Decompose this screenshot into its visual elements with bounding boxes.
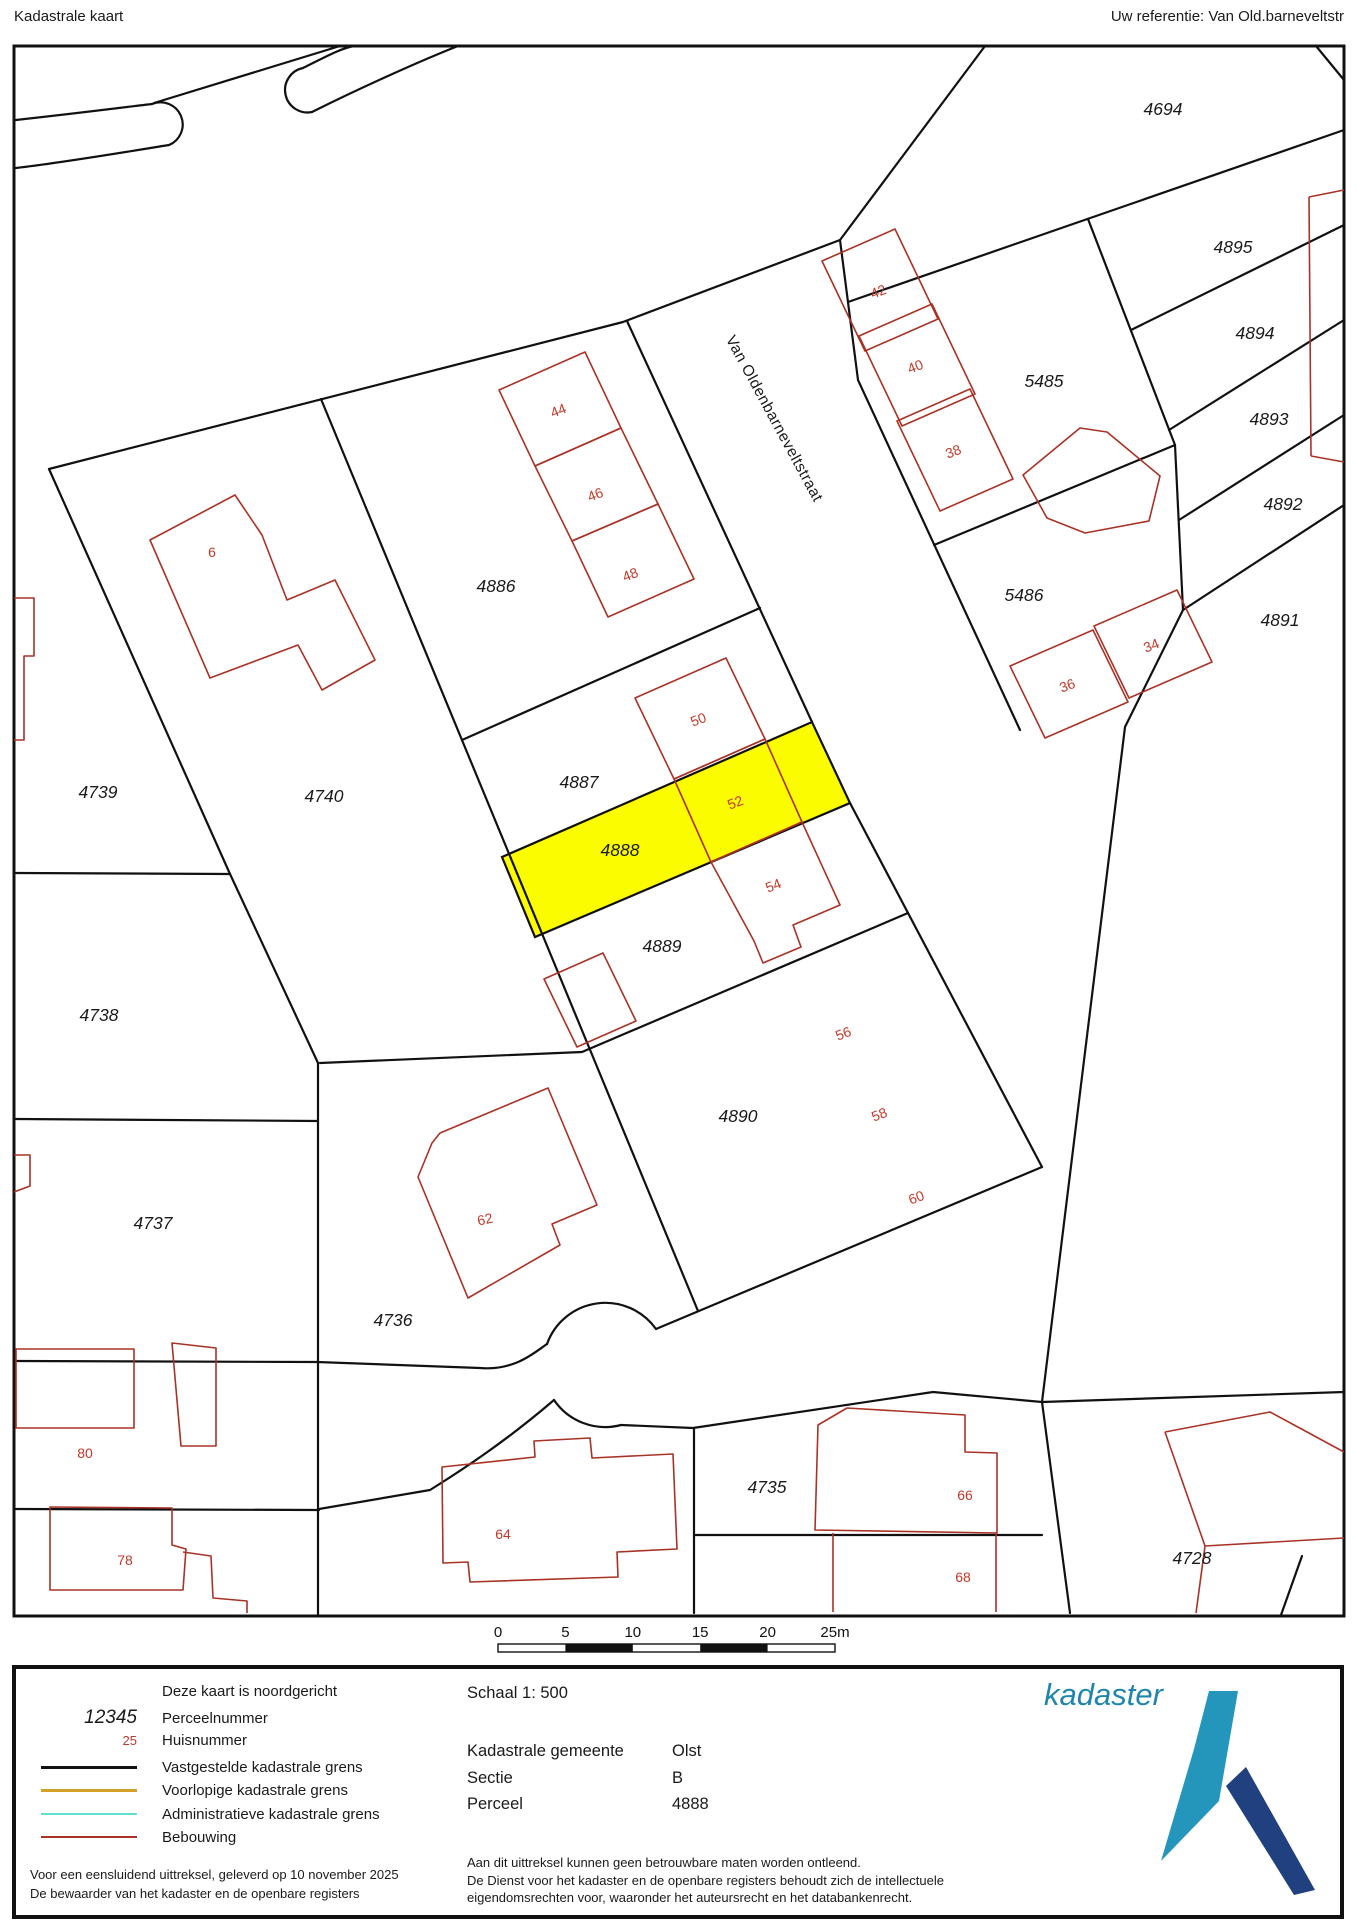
detail-value: Olst [672,1742,701,1761]
parcel-label-5485: 5485 [1025,371,1064,391]
parcel-label-4894: 4894 [1236,323,1275,343]
copyright-note: Aan dit uittreksel kunnen geen betrouwba… [467,1854,944,1907]
legend-sample [41,1756,137,1778]
detail-value: 4888 [672,1795,709,1814]
scale-tick-20: 20 [759,1624,776,1641]
legend-sample [41,1803,137,1825]
scale-tick-10: 10 [624,1624,641,1641]
detail-row: Kadastrale gemeenteOlst [467,1742,1007,1764]
parcel-label-4888: 4888 [601,840,640,860]
detail-row: SectieB [467,1769,1007,1791]
legend-item: 12345Perceelnummer [41,1707,601,1729]
house-number-68: 68 [955,1569,971,1585]
kadaster-logo-icon [1141,1679,1351,1919]
legend-label: Perceelnummer [162,1707,268,1729]
parcel-label-5486: 5486 [1005,585,1044,605]
parcel-label-4737: 4737 [134,1213,174,1233]
legend-sample: 25 [41,1729,137,1751]
legend-sample: 12345 [41,1707,137,1729]
parcel-label-4728: 4728 [1173,1548,1212,1568]
parcel-label-4735: 4735 [748,1477,787,1497]
detail-row: Perceel4888 [467,1795,1007,1817]
parcel-label-4886: 4886 [477,576,516,596]
scale-bar: 0510152025m [494,1624,850,1652]
map-view[interactable]: Van Oldenbarneveltstraat 469448954894548… [0,0,1357,1920]
parcel-label-4891: 4891 [1261,610,1300,630]
legend-label: Huisnummer [162,1729,247,1751]
house-number-66: 66 [957,1487,973,1503]
legend-item: Bebouwing [41,1826,601,1848]
detail-value: B [672,1769,683,1788]
scale-tick-25m: 25m [820,1624,849,1641]
parcel-label-4738: 4738 [80,1005,119,1025]
legend-label: Deze kaart is noordgericht [162,1680,337,1702]
house-number-78: 78 [117,1552,133,1568]
legend-sample [41,1826,137,1848]
legend-sample [41,1779,137,1801]
legend-sample [41,1680,137,1702]
house-number-64: 64 [495,1526,511,1542]
legend-panel: Deze kaart is noordgericht12345Perceelnu… [12,1665,1344,1919]
delivery-note: Voor een eensluidend uittreksel, gelever… [30,1866,399,1903]
parcel-label-4887: 4887 [560,772,600,792]
legend-label: Bebouwing [162,1826,236,1848]
cadastral-map-page: Kadastrale kaart Uw referentie: Van Old.… [0,0,1357,1920]
parcel-label-4895: 4895 [1214,237,1253,257]
legend-label: Administratieve kadastrale grens [162,1803,380,1825]
scale-text: Schaal 1: 500 [467,1684,568,1703]
scale-tick-15: 15 [692,1624,709,1641]
scale-bar-labels: 0510152025m [494,1624,850,1641]
parcel-label-4736: 4736 [374,1310,413,1330]
parcel-label-4890: 4890 [719,1106,758,1126]
parcel-label-4694: 4694 [1144,99,1183,119]
legend-label: Vastgestelde kadastrale grens [162,1756,363,1778]
detail-label: Perceel [467,1795,523,1813]
parcel-label-4892: 4892 [1264,494,1303,514]
legend-label: Voorlopige kadastrale grens [162,1779,348,1801]
house-number-80: 80 [77,1445,93,1461]
detail-label: Kadastrale gemeente [467,1742,624,1760]
house-number-6: 6 [208,544,216,560]
parcel-label-4740: 4740 [305,786,344,806]
scale-tick-0: 0 [494,1624,502,1641]
parcel-label-4889: 4889 [643,936,682,956]
detail-label: Sectie [467,1769,513,1787]
parcel-label-4893: 4893 [1250,409,1289,429]
scale-tick-5: 5 [561,1624,569,1641]
parcel-label-4739: 4739 [79,782,118,802]
